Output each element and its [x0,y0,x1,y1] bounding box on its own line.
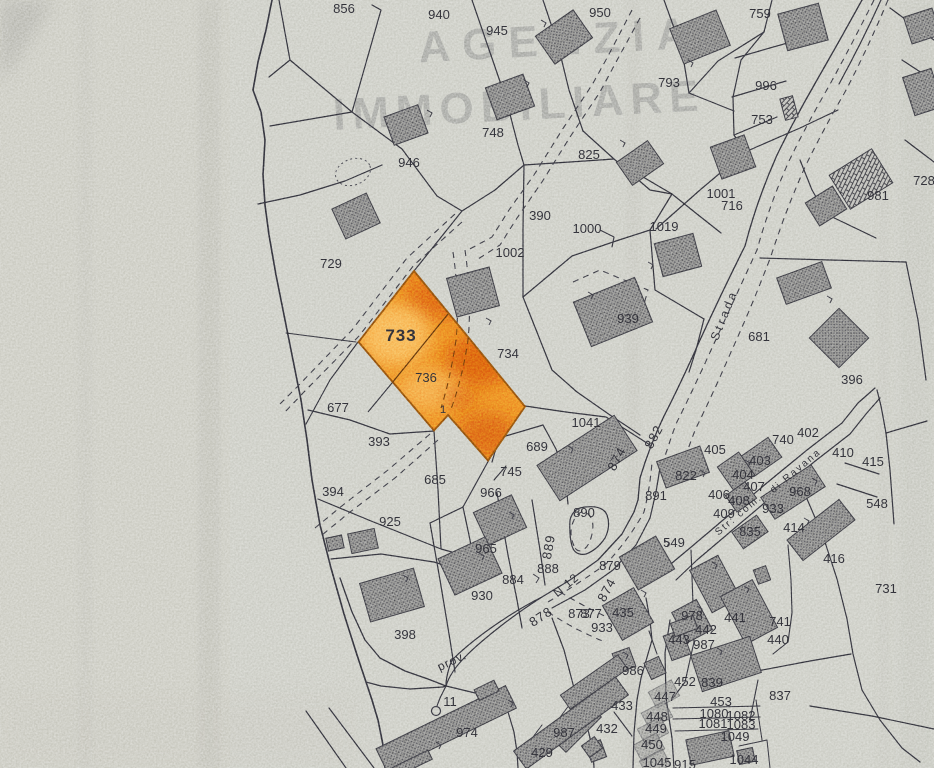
svg-text:793: 793 [658,75,680,90]
svg-text:741: 741 [769,614,791,629]
svg-text:996: 996 [755,78,777,93]
svg-text:731: 731 [875,581,897,596]
svg-text:441: 441 [724,610,746,625]
svg-text:1045: 1045 [643,755,672,768]
svg-text:402: 402 [797,425,819,440]
svg-text:689: 689 [526,439,548,454]
svg-text:733: 733 [385,326,416,345]
svg-text:734: 734 [497,346,519,361]
svg-text:1002: 1002 [496,245,525,260]
svg-text:443: 443 [668,632,690,647]
svg-text:728: 728 [913,173,934,188]
svg-text:930: 930 [471,588,493,603]
svg-text:736: 736 [415,370,437,385]
svg-text:403: 403 [749,453,771,468]
svg-text:945: 945 [486,23,508,38]
svg-text:394: 394 [322,484,344,499]
svg-text:966: 966 [480,485,502,500]
svg-text:986: 986 [622,663,644,678]
svg-text:396: 396 [841,372,863,387]
svg-text:681: 681 [748,329,770,344]
svg-text:410: 410 [832,445,854,460]
svg-text:415: 415 [862,454,884,469]
svg-text:856: 856 [333,1,355,16]
svg-text:549: 549 [663,535,685,550]
svg-text:745: 745 [500,464,522,479]
svg-text:729: 729 [320,256,342,271]
svg-text:915: 915 [674,757,696,768]
svg-text:716: 716 [721,198,743,213]
svg-text:839: 839 [701,675,723,690]
svg-text:449: 449 [645,721,667,736]
svg-text:405: 405 [704,442,726,457]
svg-text:939: 939 [617,311,639,326]
svg-text:822: 822 [675,468,697,483]
svg-text:946: 946 [398,155,420,170]
svg-text:452: 452 [674,674,696,689]
svg-text:390: 390 [529,208,551,223]
svg-text:925: 925 [379,514,401,529]
svg-text:965: 965 [475,541,497,556]
svg-text:1044: 1044 [730,752,759,767]
svg-text:1041: 1041 [572,415,601,430]
svg-text:891: 891 [645,488,667,503]
svg-text:435: 435 [612,605,634,620]
svg-text:447: 447 [654,689,676,704]
svg-text:11: 11 [443,694,457,709]
svg-text:753: 753 [751,112,773,127]
svg-text:987: 987 [553,725,575,740]
svg-text:414: 414 [783,520,805,535]
svg-text:950: 950 [589,5,611,20]
svg-text:685: 685 [424,472,446,487]
svg-text:974: 974 [456,725,478,740]
svg-text:877: 877 [580,606,602,621]
svg-text:450: 450 [641,737,663,752]
svg-text:884: 884 [502,572,524,587]
svg-text:1: 1 [440,404,446,416]
svg-text:406: 406 [708,487,730,502]
svg-text:442: 442 [695,622,717,637]
svg-text:933: 933 [591,620,613,635]
svg-text:888: 888 [537,561,559,576]
svg-text:879: 879 [599,558,621,573]
svg-text:933: 933 [762,501,784,516]
svg-text:981: 981 [867,188,889,203]
svg-text:759: 759 [749,6,771,21]
svg-text:1019: 1019 [650,219,679,234]
svg-text:837: 837 [769,688,791,703]
svg-text:978: 978 [681,608,703,623]
svg-text:416: 416 [823,551,845,566]
svg-text:433: 433 [611,698,633,713]
svg-text:890: 890 [573,505,595,520]
svg-text:548: 548 [866,496,888,511]
svg-text:748: 748 [482,125,504,140]
svg-text:393: 393 [368,434,390,449]
svg-text:987: 987 [693,637,715,652]
svg-text:429: 429 [531,745,553,760]
svg-text:940: 940 [428,7,450,22]
svg-text:398: 398 [394,627,416,642]
svg-text:440: 440 [767,632,789,647]
svg-text:740: 740 [772,432,794,447]
svg-text:432: 432 [596,721,618,736]
svg-text:825: 825 [578,147,600,162]
svg-text:407: 407 [743,479,765,494]
svg-text:677: 677 [327,400,349,415]
svg-text:968: 968 [789,484,811,499]
svg-text:1049: 1049 [721,729,750,744]
svg-text:835: 835 [739,524,761,539]
svg-text:1000: 1000 [573,221,602,236]
